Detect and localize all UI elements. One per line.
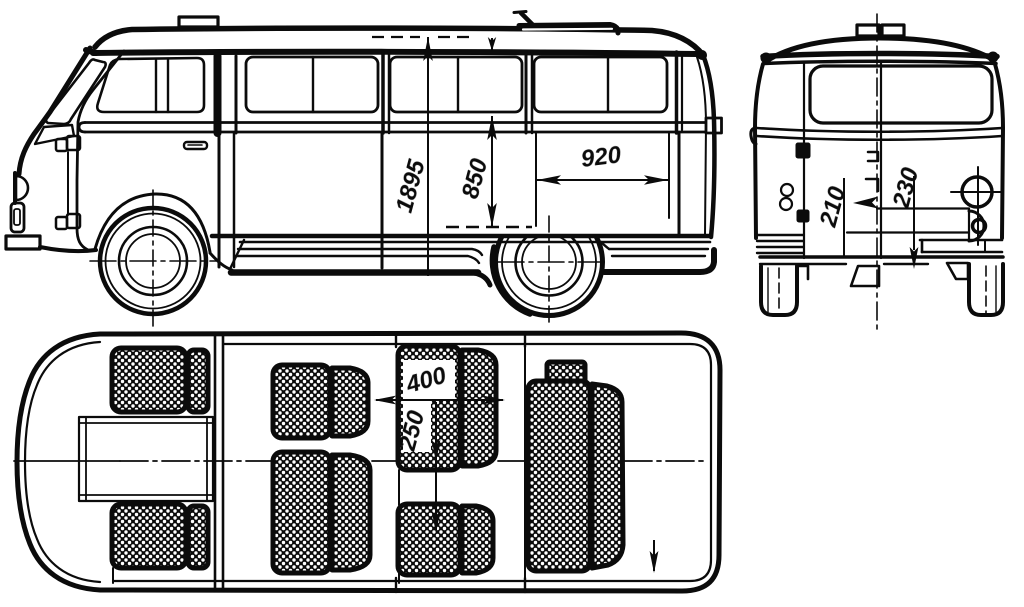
svg-text:920: 920 bbox=[579, 141, 623, 173]
